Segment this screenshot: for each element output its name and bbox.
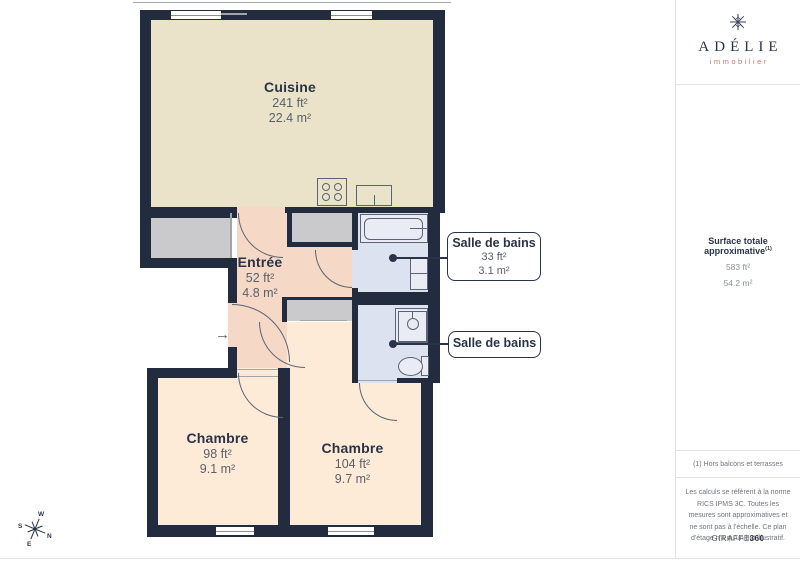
wall — [140, 207, 237, 218]
window — [215, 526, 255, 536]
bathtub-icon — [360, 214, 428, 243]
room-label-cuisine: Cuisine 241 ft² 22.4 m² — [215, 79, 365, 126]
room-label-entree: Entrée 52 ft² 4.8 m² — [202, 254, 318, 301]
floor-plan: Salle de bains 33 ft² 3.1 m² Salle de ba… — [0, 0, 675, 566]
surface-title: Surface totale approximative(1) — [676, 236, 800, 256]
room-name: Chambre — [150, 430, 285, 447]
agency-logo: ADÉLIE immobilier — [676, 0, 800, 66]
window — [330, 10, 373, 20]
room-area-ft: 104 ft² — [285, 457, 420, 472]
room-area-m: 22.4 m² — [215, 111, 365, 126]
callout-label: Salle de bains — [448, 236, 540, 251]
door-threshold — [358, 380, 397, 381]
divider — [676, 84, 800, 85]
agency-name: ADÉLIE — [676, 39, 800, 56]
callout-salle-de-bains-1: Salle de bains 33 ft² 3.1 m² — [447, 232, 541, 281]
brand-giraffe360: GIRAFFE360 — [676, 534, 800, 543]
wall — [147, 368, 237, 378]
brand-suffix: 360 — [750, 534, 765, 543]
brand-name: GIRAFFE — [711, 534, 749, 543]
wall — [287, 242, 358, 247]
room-name: Cuisine — [215, 79, 365, 96]
washbasin-icon — [410, 257, 428, 290]
callout-m: 3.1 m² — [448, 265, 540, 279]
wall — [421, 383, 433, 537]
burner-icon — [334, 193, 342, 201]
compass-s: S — [18, 523, 23, 530]
wall — [282, 300, 287, 322]
entry-arrow-icon: → — [215, 326, 230, 343]
burner-icon — [322, 193, 330, 201]
surface-title-text: Surface totale approximative — [704, 236, 768, 256]
burner-icon — [322, 183, 330, 191]
compass-n: N — [47, 533, 52, 540]
toilet-bowl-icon — [398, 357, 423, 376]
bathtub-inner — [364, 218, 423, 240]
room-label-chambre1: Chambre 98 ft² 9.1 m² — [150, 430, 285, 477]
room-landing-gray — [151, 218, 232, 258]
leader-line — [393, 257, 449, 259]
wall — [352, 305, 358, 378]
sidebar: ADÉLIE immobilier Surface totale approxi… — [675, 0, 800, 558]
page-bottom-border — [0, 558, 800, 559]
shower-head — [407, 318, 419, 330]
snowflake-icon — [728, 12, 748, 32]
leader-line — [393, 343, 450, 345]
agency-tagline: immobilier — [676, 57, 800, 66]
surface-footnote-ref: (1) — [765, 246, 772, 252]
callout-label: Salle de bains — [449, 333, 540, 354]
wall — [352, 292, 440, 305]
door-threshold — [300, 320, 347, 321]
window — [170, 10, 222, 20]
washbasin-line — [411, 273, 428, 274]
room-name: Chambre — [285, 440, 420, 457]
bathtub-faucet-line — [410, 228, 428, 229]
room-name: Entrée — [202, 254, 318, 271]
callout-ft: 33 ft² — [448, 251, 540, 265]
closet-gray — [287, 300, 352, 321]
door-leaf-line — [230, 213, 232, 258]
burner-icon — [334, 183, 342, 191]
window — [327, 526, 375, 536]
room-area-ft: 52 ft² — [202, 271, 318, 286]
wall — [352, 207, 358, 250]
surface-summary: Surface totale approximative(1) 583 ft² … — [676, 236, 800, 288]
compass-rose-icon: N S W E — [6, 496, 70, 560]
balcony-line — [133, 2, 451, 3]
wall — [147, 525, 433, 537]
surface-ft: 583 ft² — [676, 262, 800, 272]
compass-w: W — [38, 511, 45, 518]
footnote: (1) Hors balcons et terrasses — [676, 450, 800, 478]
sink-drain-line — [374, 195, 375, 206]
surface-m: 54.2 m² — [676, 278, 800, 288]
room-area-m: 9.7 m² — [285, 472, 420, 487]
shower-icon — [395, 308, 428, 343]
room-label-chambre2: Chambre 104 ft² 9.7 m² — [285, 440, 420, 487]
wall — [428, 207, 440, 383]
room-area-ft: 98 ft² — [150, 447, 285, 462]
callout-salle-de-bains-2: Salle de bains — [448, 331, 541, 358]
room-area-m: 4.8 m² — [202, 286, 318, 301]
wall — [433, 10, 445, 213]
room-area-m: 9.1 m² — [150, 462, 285, 477]
room-area-ft: 241 ft² — [215, 96, 365, 111]
sink-icon — [356, 185, 392, 206]
wall — [140, 10, 151, 268]
door-frame-line — [237, 369, 278, 370]
doorway-fill — [352, 250, 358, 288]
window-line — [221, 13, 247, 15]
wall — [285, 207, 440, 213]
stove-icon — [317, 178, 347, 206]
closet-gray — [292, 213, 352, 242]
compass-e: E — [27, 541, 32, 548]
